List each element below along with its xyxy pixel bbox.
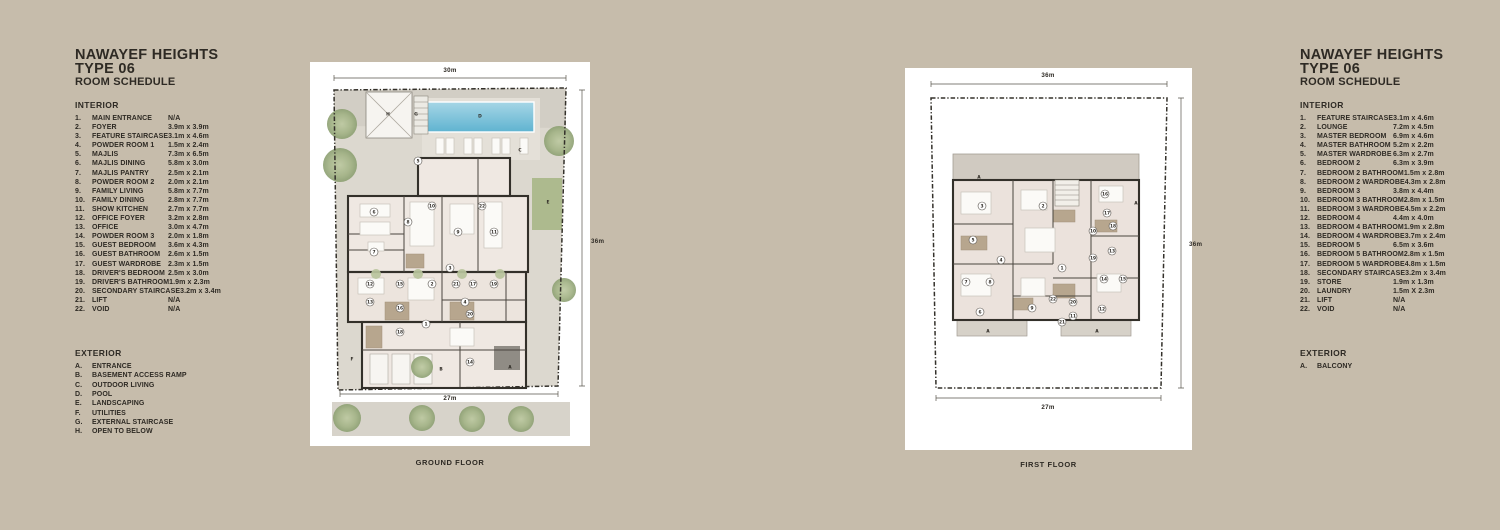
room-dimensions: 1.9m x 2.8m xyxy=(1404,223,1475,232)
right-room-schedule-panel: NAWAYEF HEIGHTS TYPE 06 ROOM SCHEDULE IN… xyxy=(1300,48,1475,371)
row-number: A. xyxy=(75,362,92,371)
row-number: 11. xyxy=(1300,205,1317,214)
row-number: 21. xyxy=(75,296,92,305)
room-dimensions: N/A xyxy=(168,296,290,305)
row-number: B. xyxy=(75,371,92,380)
room-name: GUEST WARDROBE xyxy=(92,260,168,269)
room-dimensions: 2.6m x 1.5m xyxy=(168,250,290,259)
schedule-row: H.OPEN TO BELOW xyxy=(75,427,290,436)
room-marker-label: 16 xyxy=(397,306,403,312)
room-marker-label: 4 xyxy=(463,300,466,306)
room-name: MASTER BATHROOM xyxy=(1317,141,1393,150)
room-name: MASTER BEDROOM xyxy=(1317,132,1393,141)
left-room-schedule-panel: NAWAYEF HEIGHTS TYPE 06 ROOM SCHEDULE IN… xyxy=(75,48,290,436)
room-marker-label: 22 xyxy=(479,204,485,210)
room-dimensions xyxy=(168,427,290,436)
schedule-row: 2.FOYER3.9m x 3.9m xyxy=(75,123,290,132)
row-number: 16. xyxy=(75,250,92,259)
row-number: 9. xyxy=(1300,187,1317,196)
schedule-row: 19.STORE1.9m x 1.3m xyxy=(1300,278,1475,287)
room-marker-label: F xyxy=(351,357,354,363)
room-dimensions: 4.4m x 4.0m xyxy=(1393,214,1475,223)
room-dimensions: 3.8m x 4.4m xyxy=(1393,187,1475,196)
schedule-row: 7.BEDROOM 2 BATHROOM1.5m x 2.8m xyxy=(1300,169,1475,178)
row-number: 7. xyxy=(75,169,92,178)
row-number: 6. xyxy=(75,159,92,168)
exterior-schedule-list: A.BALCONY xyxy=(1300,362,1475,371)
room-name: SECONDARY STAIRCASE xyxy=(1317,269,1405,278)
schedule-row: A.ENTRANCE xyxy=(75,362,290,371)
room-dimensions: 7.3m x 6.5m xyxy=(168,150,290,159)
room-name: EXTERNAL STAIRCASE xyxy=(92,418,173,427)
room-name: MAIN ENTRANCE xyxy=(92,114,168,123)
room-marker-label: 10 xyxy=(429,204,435,210)
schedule-row: 18.DRIVER'S BEDROOM2.5m x 3.0m xyxy=(75,269,290,278)
room-marker-label: 6 xyxy=(372,210,375,216)
room-name: MAJLIS xyxy=(92,150,168,159)
unit-type: TYPE 06 xyxy=(75,62,290,76)
row-number: 7. xyxy=(1300,169,1317,178)
schedule-row: 13.BEDROOM 4 BATHROOM1.9m x 2.8m xyxy=(1300,223,1475,232)
schedule-row: 6.BEDROOM 26.3m x 3.9m xyxy=(1300,159,1475,168)
row-number: 16. xyxy=(1300,250,1317,259)
schedule-row: 17.GUEST WARDROBE2.3m x 1.5m xyxy=(75,260,290,269)
room-marker-label: G xyxy=(414,112,418,118)
room-marker-label: 11 xyxy=(491,230,497,236)
row-number: 5. xyxy=(75,150,92,159)
ground-floor-plan: 30m xyxy=(310,62,622,450)
schedule-row: 3.FEATURE STAIRCASE3.1m x 4.6m xyxy=(75,132,290,141)
room-marker-label: 21 xyxy=(453,282,459,288)
schedule-row: 22.VOIDN/A xyxy=(75,305,290,314)
room-dimensions: 1.5m x 2.8m xyxy=(1404,169,1475,178)
first-floor-plan: 36m xyxy=(905,68,1220,452)
exterior-schedule-list: A.ENTRANCEB.BASEMENT ACCESS RAMPC.OUTDOO… xyxy=(75,362,290,436)
project-name: NAWAYEF HEIGHTS xyxy=(75,48,290,62)
row-number: 5. xyxy=(1300,150,1317,159)
room-dimensions xyxy=(168,390,290,399)
room-name: ENTRANCE xyxy=(92,362,168,371)
row-number: G. xyxy=(75,418,92,427)
schedule-row: D.POOL xyxy=(75,390,290,399)
row-number: 19. xyxy=(1300,278,1317,287)
room-dimensions: N/A xyxy=(1393,305,1475,314)
room-marker-label: 7 xyxy=(964,280,967,286)
room-name: GUEST BEDROOM xyxy=(92,241,168,250)
room-name: UTILITIES xyxy=(92,409,168,418)
interior-schedule-list: 1.MAIN ENTRANCEN/A2.FOYER3.9m x 3.9m3.FE… xyxy=(75,114,290,314)
ground-floor-caption: GROUND FLOOR xyxy=(310,458,590,467)
first-floor-caption: FIRST FLOOR xyxy=(905,460,1192,469)
room-dimensions: 3.2m x 3.4m xyxy=(180,287,290,296)
room-marker-label: 9 xyxy=(456,230,459,236)
sheet-title: ROOM SCHEDULE xyxy=(75,76,290,88)
row-number: 14. xyxy=(75,232,92,241)
room-dimensions: 5.2m x 2.2m xyxy=(1393,141,1475,150)
room-name: MAJLIS DINING xyxy=(92,159,168,168)
room-marker-label: 8 xyxy=(406,220,409,226)
schedule-row: 21.LIFTN/A xyxy=(75,296,290,305)
room-marker-label: 4 xyxy=(999,258,1002,264)
row-number: 19. xyxy=(75,278,92,287)
row-number: C. xyxy=(75,381,92,390)
room-marker-label: 5 xyxy=(416,159,419,165)
schedule-row: 5.MAJLIS7.3m x 6.5m xyxy=(75,150,290,159)
row-number: A. xyxy=(1300,362,1317,371)
room-dimensions: 1.5m X 2.3m xyxy=(1393,287,1475,296)
room-name: LOUNGE xyxy=(1317,123,1393,132)
row-number: 13. xyxy=(75,223,92,232)
row-number: F. xyxy=(75,409,92,418)
room-dimensions xyxy=(1393,362,1475,371)
room-marker-label: 1 xyxy=(1060,266,1063,272)
room-name: BEDROOM 2 WARDROBE xyxy=(1317,178,1405,187)
room-dimensions: N/A xyxy=(1393,296,1475,305)
room-dimensions: 2.8m x 1.5m xyxy=(1404,250,1475,259)
room-name: BEDROOM 4 BATHROOM xyxy=(1317,223,1404,232)
room-name: BEDROOM 4 xyxy=(1317,214,1393,223)
schedule-row: 22.VOIDN/A xyxy=(1300,305,1475,314)
room-name: GUEST BATHROOM xyxy=(92,250,168,259)
room-name: FAMILY DINING xyxy=(92,196,168,205)
schedule-row: 16.GUEST BATHROOM2.6m x 1.5m xyxy=(75,250,290,259)
row-number: 3. xyxy=(1300,132,1317,141)
room-marker-label: 13 xyxy=(1109,249,1115,255)
ground-floor-plan-area: 30m xyxy=(310,62,622,467)
room-marker-label: 19 xyxy=(491,282,497,288)
room-dimensions: 3.2m x 2.8m xyxy=(168,214,290,223)
row-number: 9. xyxy=(75,187,92,196)
room-dimensions: 4.5m x 2.2m xyxy=(1405,205,1475,214)
row-number: 1. xyxy=(75,114,92,123)
row-number: 15. xyxy=(1300,241,1317,250)
room-name: VOID xyxy=(92,305,168,314)
room-dimensions xyxy=(173,418,290,427)
room-name: LIFT xyxy=(92,296,168,305)
schedule-row: 17.BEDROOM 5 WARDROBE4.8m x 1.5m xyxy=(1300,260,1475,269)
room-dimensions xyxy=(168,399,290,408)
room-dimensions: 1.9m x 1.3m xyxy=(1393,278,1475,287)
schedule-row: G.EXTERNAL STAIRCASE xyxy=(75,418,290,427)
room-name: LAUNDRY xyxy=(1317,287,1393,296)
room-name: BEDROOM 5 BATHROOM xyxy=(1317,250,1404,259)
interior-schedule-list: 1.FEATURE STAIRCASE3.1m x 4.6m2.LOUNGE7.… xyxy=(1300,114,1475,314)
room-dimensions: 6.3m x 3.9m xyxy=(1393,159,1475,168)
interior-heading: INTERIOR xyxy=(1300,100,1475,110)
room-name: BEDROOM 5 xyxy=(1317,241,1393,250)
room-dimensions: 1.5m x 2.4m xyxy=(168,141,290,150)
room-marker-label: 7 xyxy=(372,250,375,256)
room-marker-label: A xyxy=(1134,201,1138,207)
row-number: 8. xyxy=(75,178,92,187)
room-marker-label: 3 xyxy=(448,266,451,272)
room-name: BEDROOM 3 xyxy=(1317,187,1393,196)
room-name: SECONDARY STAIRCASE xyxy=(92,287,180,296)
row-number: 2. xyxy=(75,123,92,132)
room-name: POOL xyxy=(92,390,168,399)
schedule-row: 3.MASTER BEDROOM6.9m x 4.6m xyxy=(1300,132,1475,141)
row-number: 21. xyxy=(1300,296,1317,305)
exterior-heading: EXTERIOR xyxy=(1300,348,1475,358)
room-dimensions: 6.3m x 2.7m xyxy=(1393,150,1475,159)
room-dimensions: 2.5m x 3.0m xyxy=(168,269,290,278)
schedule-row: 19.DRIVER'S BATHROOM1.9m x 2.3m xyxy=(75,278,290,287)
room-name: OFFICE xyxy=(92,223,168,232)
room-dimensions: 6.9m x 4.6m xyxy=(1393,132,1475,141)
room-name: LANDSCAPING xyxy=(92,399,168,408)
staircase xyxy=(1055,180,1079,206)
unit-type: TYPE 06 xyxy=(1300,62,1475,76)
room-name: BEDROOM 3 WARDROBE xyxy=(1317,205,1405,214)
room-name: OUTDOOR LIVING xyxy=(92,381,168,390)
room-marker-label: 19 xyxy=(1090,256,1096,262)
schedule-row: 9.BEDROOM 33.8m x 4.4m xyxy=(1300,187,1475,196)
schedule-row: 1.MAIN ENTRANCEN/A xyxy=(75,114,290,123)
interior-heading: INTERIOR xyxy=(75,100,290,110)
row-number: 14. xyxy=(1300,232,1317,241)
schedule-row: 11.BEDROOM 3 WARDROBE4.5m x 2.2m xyxy=(1300,205,1475,214)
room-dimensions: 2.8m x 1.5m xyxy=(1404,196,1475,205)
schedule-row: 10.BEDROOM 3 BATHROOM2.8m x 1.5m xyxy=(1300,196,1475,205)
room-marker-label: D xyxy=(478,114,482,120)
room-marker-label: 2 xyxy=(1041,204,1044,210)
room-dimensions: 3.2m x 3.4m xyxy=(1405,269,1475,278)
row-number: 6. xyxy=(1300,159,1317,168)
road-strip xyxy=(332,402,570,436)
project-name: NAWAYEF HEIGHTS xyxy=(1300,48,1475,62)
room-dimensions: 2.0m x 1.8m xyxy=(168,232,290,241)
room-marker-label: 1 xyxy=(424,322,427,328)
row-number: 20. xyxy=(1300,287,1317,296)
schedule-row: 20.LAUNDRY1.5m X 2.3m xyxy=(1300,287,1475,296)
room-marker-label: 16 xyxy=(1102,192,1108,198)
room-marker-label: 6 xyxy=(978,310,981,316)
room-marker-label: A xyxy=(977,175,981,181)
row-number: 22. xyxy=(75,305,92,314)
room-marker-label: 22 xyxy=(1050,297,1056,303)
room-name: STORE xyxy=(1317,278,1393,287)
room-marker-label: A xyxy=(1095,329,1099,335)
room-name: OFFICE FOYER xyxy=(92,214,168,223)
room-dimensions: 2.7m x 7.7m xyxy=(168,205,290,214)
schedule-row: 7.MAJLIS PANTRY2.5m x 2.1m xyxy=(75,169,290,178)
room-marker-label: 12 xyxy=(367,282,373,288)
room-dimensions: 3.6m x 4.3m xyxy=(168,241,290,250)
room-name: BEDROOM 4 WARDROBE xyxy=(1317,232,1405,241)
room-marker-label: 13 xyxy=(367,300,373,306)
room-dimensions: 5.8m x 7.7m xyxy=(168,187,290,196)
row-number: 2. xyxy=(1300,123,1317,132)
schedule-row: 14.POWDER ROOM 32.0m x 1.8m xyxy=(75,232,290,241)
room-name: BEDROOM 3 BATHROOM xyxy=(1317,196,1404,205)
room-dimensions: 4.3m x 2.8m xyxy=(1405,178,1475,187)
room-marker-label: 18 xyxy=(1110,224,1116,230)
room-marker-label: 18 xyxy=(397,330,403,336)
exterior-heading: EXTERIOR xyxy=(75,348,290,358)
schedule-row: 12.OFFICE FOYER3.2m x 2.8m xyxy=(75,214,290,223)
room-name: FAMILY LIVING xyxy=(92,187,168,196)
room-marker-label: 12 xyxy=(1099,307,1105,313)
schedule-row: 18.SECONDARY STAIRCASE3.2m x 3.4m xyxy=(1300,269,1475,278)
schedule-row: B.BASEMENT ACCESS RAMP xyxy=(75,371,290,380)
room-dimensions: 3.1m x 4.6m xyxy=(168,132,290,141)
row-number: 11. xyxy=(75,205,92,214)
room-name: POWDER ROOM 1 xyxy=(92,141,168,150)
room-marker-label: 10 xyxy=(1090,229,1096,235)
room-marker-label: 3 xyxy=(980,204,983,210)
dim-top-label: 36m xyxy=(1041,72,1054,79)
row-number: E. xyxy=(75,399,92,408)
room-marker-label: 20 xyxy=(1070,300,1076,306)
room-marker-label: 2 xyxy=(430,282,433,288)
room-dimensions: 7.2m x 4.5m xyxy=(1393,123,1475,132)
room-name: FOYER xyxy=(92,123,168,132)
row-number: 10. xyxy=(75,196,92,205)
row-number: 17. xyxy=(1300,260,1317,269)
row-number: 17. xyxy=(75,260,92,269)
row-number: 18. xyxy=(1300,269,1317,278)
room-dimensions xyxy=(168,381,290,390)
schedule-row: 16.BEDROOM 5 BATHROOM2.8m x 1.5m xyxy=(1300,250,1475,259)
room-marker-label: 11 xyxy=(1070,314,1076,320)
schedule-row: 2.LOUNGE7.2m x 4.5m xyxy=(1300,123,1475,132)
room-name: VOID xyxy=(1317,305,1393,314)
schedule-row: A.BALCONY xyxy=(1300,362,1475,371)
room-dimensions: 1.9m x 2.3m xyxy=(169,278,290,287)
schedule-row: 14.BEDROOM 4 WARDROBE3.7m x 2.4m xyxy=(1300,232,1475,241)
schedule-row: 4.POWDER ROOM 11.5m x 2.4m xyxy=(75,141,290,150)
row-number: 13. xyxy=(1300,223,1317,232)
schedule-row: 9.FAMILY LIVING5.8m x 7.7m xyxy=(75,187,290,196)
schedule-row: 21.LIFTN/A xyxy=(1300,296,1475,305)
room-dimensions: 3.0m x 4.7m xyxy=(168,223,290,232)
schedule-row: 5.MASTER WARDROBE6.3m x 2.7m xyxy=(1300,150,1475,159)
dim-right-label: 36m xyxy=(591,238,604,245)
room-dimensions: 3.7m x 2.4m xyxy=(1405,232,1475,241)
room-marker-label: 21 xyxy=(1059,320,1065,326)
room-dimensions: 3.1m x 4.6m xyxy=(1393,114,1475,123)
row-number: 15. xyxy=(75,241,92,250)
row-number: 12. xyxy=(1300,214,1317,223)
row-number: 12. xyxy=(75,214,92,223)
row-number: 18. xyxy=(75,269,92,278)
row-number: 4. xyxy=(1300,141,1317,150)
schedule-row: 11.SHOW KITCHEN2.7m x 7.7m xyxy=(75,205,290,214)
schedule-row: F.UTILITIES xyxy=(75,409,290,418)
schedule-row: 8.POWDER ROOM 22.0m x 2.1m xyxy=(75,178,290,187)
room-dimensions: 2.0m x 2.1m xyxy=(168,178,290,187)
schedule-row: 6.MAJLIS DINING5.8m x 3.0m xyxy=(75,159,290,168)
schedule-row: 15.BEDROOM 56.5m x 3.6m xyxy=(1300,241,1475,250)
room-name: POWDER ROOM 2 xyxy=(92,178,168,187)
first-floor-plan-area: 36m xyxy=(905,68,1220,469)
room-dimensions: 4.8m x 1.5m xyxy=(1405,260,1475,269)
room-dimensions xyxy=(168,409,290,418)
schedule-row: E.LANDSCAPING xyxy=(75,399,290,408)
room-dimensions xyxy=(187,371,290,380)
room-marker-label: 20 xyxy=(467,312,473,318)
row-number: H. xyxy=(75,427,92,436)
row-number: 1. xyxy=(1300,114,1317,123)
row-number: 4. xyxy=(75,141,92,150)
room-name: MAJLIS PANTRY xyxy=(92,169,168,178)
room-marker-label: 14 xyxy=(1101,277,1107,283)
room-dimensions xyxy=(168,362,290,371)
dim-bottom-label: 27m xyxy=(1041,404,1054,411)
room-marker-label: 8 xyxy=(988,280,991,286)
room-marker-label: A xyxy=(508,365,512,371)
room-name: LIFT xyxy=(1317,296,1393,305)
room-dimensions: 2.3m x 1.5m xyxy=(168,260,290,269)
room-name: BEDROOM 5 WARDROBE xyxy=(1317,260,1405,269)
room-marker-label: 14 xyxy=(467,360,473,366)
room-name: BEDROOM 2 BATHROOM xyxy=(1317,169,1404,178)
room-marker-label: A xyxy=(986,329,990,335)
room-dimensions: 2.8m x 7.7m xyxy=(168,196,290,205)
room-marker-label: 9 xyxy=(1030,306,1033,312)
room-name: DRIVER'S BEDROOM xyxy=(92,269,168,278)
room-dimensions: 6.5m x 3.6m xyxy=(1393,241,1475,250)
room-dimensions: 3.9m x 3.9m xyxy=(168,123,290,132)
room-name: BEDROOM 2 xyxy=(1317,159,1393,168)
row-number: 20. xyxy=(75,287,92,296)
room-marker-label: 5 xyxy=(971,238,974,244)
schedule-row: 10.FAMILY DINING2.8m x 7.7m xyxy=(75,196,290,205)
room-dimensions: N/A xyxy=(168,305,290,314)
room-marker-label: H xyxy=(386,112,390,118)
room-marker-label: E xyxy=(547,200,550,206)
schedule-row: 1.FEATURE STAIRCASE3.1m x 4.6m xyxy=(1300,114,1475,123)
room-name: DRIVER'S BATHROOM xyxy=(92,278,169,287)
schedule-row: 13.OFFICE3.0m x 4.7m xyxy=(75,223,290,232)
room-dimensions: 5.8m x 3.0m xyxy=(168,159,290,168)
room-schedule-sheet: NAWAYEF HEIGHTS TYPE 06 ROOM SCHEDULE IN… xyxy=(0,0,1500,530)
room-marker-label: 17 xyxy=(470,282,476,288)
room-name: BASEMENT ACCESS RAMP xyxy=(92,371,187,380)
sheet-title: ROOM SCHEDULE xyxy=(1300,76,1475,88)
schedule-row: C.OUTDOOR LIVING xyxy=(75,381,290,390)
dim-bottom-label: 27m xyxy=(443,395,456,402)
room-marker-label: 15 xyxy=(1120,277,1126,283)
room-marker-label: 17 xyxy=(1104,211,1110,217)
room-dimensions: N/A xyxy=(168,114,290,123)
room-name: BALCONY xyxy=(1317,362,1393,371)
dim-right-label: 36m xyxy=(1189,241,1202,248)
row-number: 3. xyxy=(75,132,92,141)
room-name: FEATURE STAIRCASE xyxy=(1317,114,1393,123)
row-number: D. xyxy=(75,390,92,399)
room-name: POWDER ROOM 3 xyxy=(92,232,168,241)
schedule-row: 8.BEDROOM 2 WARDROBE4.3m x 2.8m xyxy=(1300,178,1475,187)
row-number: 22. xyxy=(1300,305,1317,314)
room-marker-label: C xyxy=(518,148,521,154)
row-number: 8. xyxy=(1300,178,1317,187)
room-name: OPEN TO BELOW xyxy=(92,427,168,436)
dim-top-label: 30m xyxy=(443,67,456,74)
schedule-row: 4.MASTER BATHROOM5.2m x 2.2m xyxy=(1300,141,1475,150)
row-number: 10. xyxy=(1300,196,1317,205)
room-name: SHOW KITCHEN xyxy=(92,205,168,214)
room-name: MASTER WARDROBE xyxy=(1317,150,1393,159)
schedule-row: 20.SECONDARY STAIRCASE3.2m x 3.4m xyxy=(75,287,290,296)
room-marker-label: 15 xyxy=(397,282,403,288)
schedule-row: 15.GUEST BEDROOM3.6m x 4.3m xyxy=(75,241,290,250)
schedule-row: 12.BEDROOM 44.4m x 4.0m xyxy=(1300,214,1475,223)
room-name: FEATURE STAIRCASE xyxy=(92,132,168,141)
room-dimensions: 2.5m x 2.1m xyxy=(168,169,290,178)
